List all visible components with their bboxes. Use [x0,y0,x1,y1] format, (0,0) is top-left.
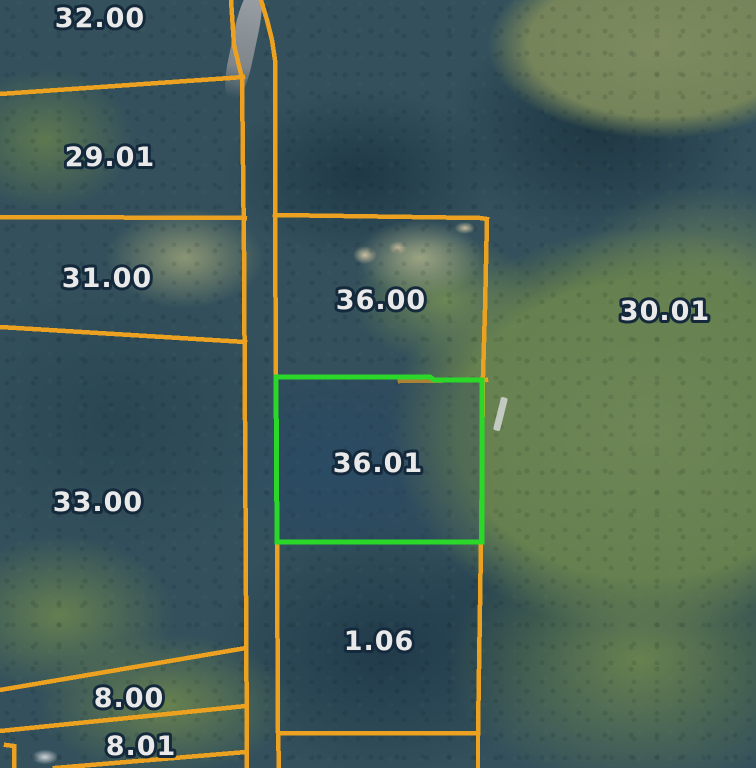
parcel-label-32-00: 32.00 [55,3,145,34]
parcel-label-29-01: 29.01 [65,142,155,173]
parcel-boundary-p36-00-top [275,215,487,219]
parcel-label-8-01: 8.01 [106,731,177,762]
parcel-boundary-road-west-edge [231,0,247,768]
parcel-label-1-06: 1.06 [344,626,415,657]
parcel-label-36-01: 36.01 [333,448,423,479]
parcel-boundary-b-31-00-33-00 [0,327,245,342]
parcel-label-31-00: 31.00 [62,263,152,294]
parcel-label-36-00: 36.00 [336,285,426,316]
parcel-label-30-01: 30.01 [620,296,710,327]
parcel-boundary-b-32-00-29-01 [0,77,243,94]
parcel-label-8-00: 8.00 [94,683,165,714]
parcel-boundary-b-29-01-31-00 [0,217,245,218]
parcel-map-viewport[interactable]: 32.0029.0131.0033.008.008.0136.0030.0136… [0,0,756,768]
parcel-map-canvas[interactable]: 32.0029.0131.0033.008.008.0136.0030.0136… [0,0,756,768]
parcel-label-33-00: 33.00 [53,487,143,518]
parcel-boundary-b-8-01-corner [6,745,14,768]
